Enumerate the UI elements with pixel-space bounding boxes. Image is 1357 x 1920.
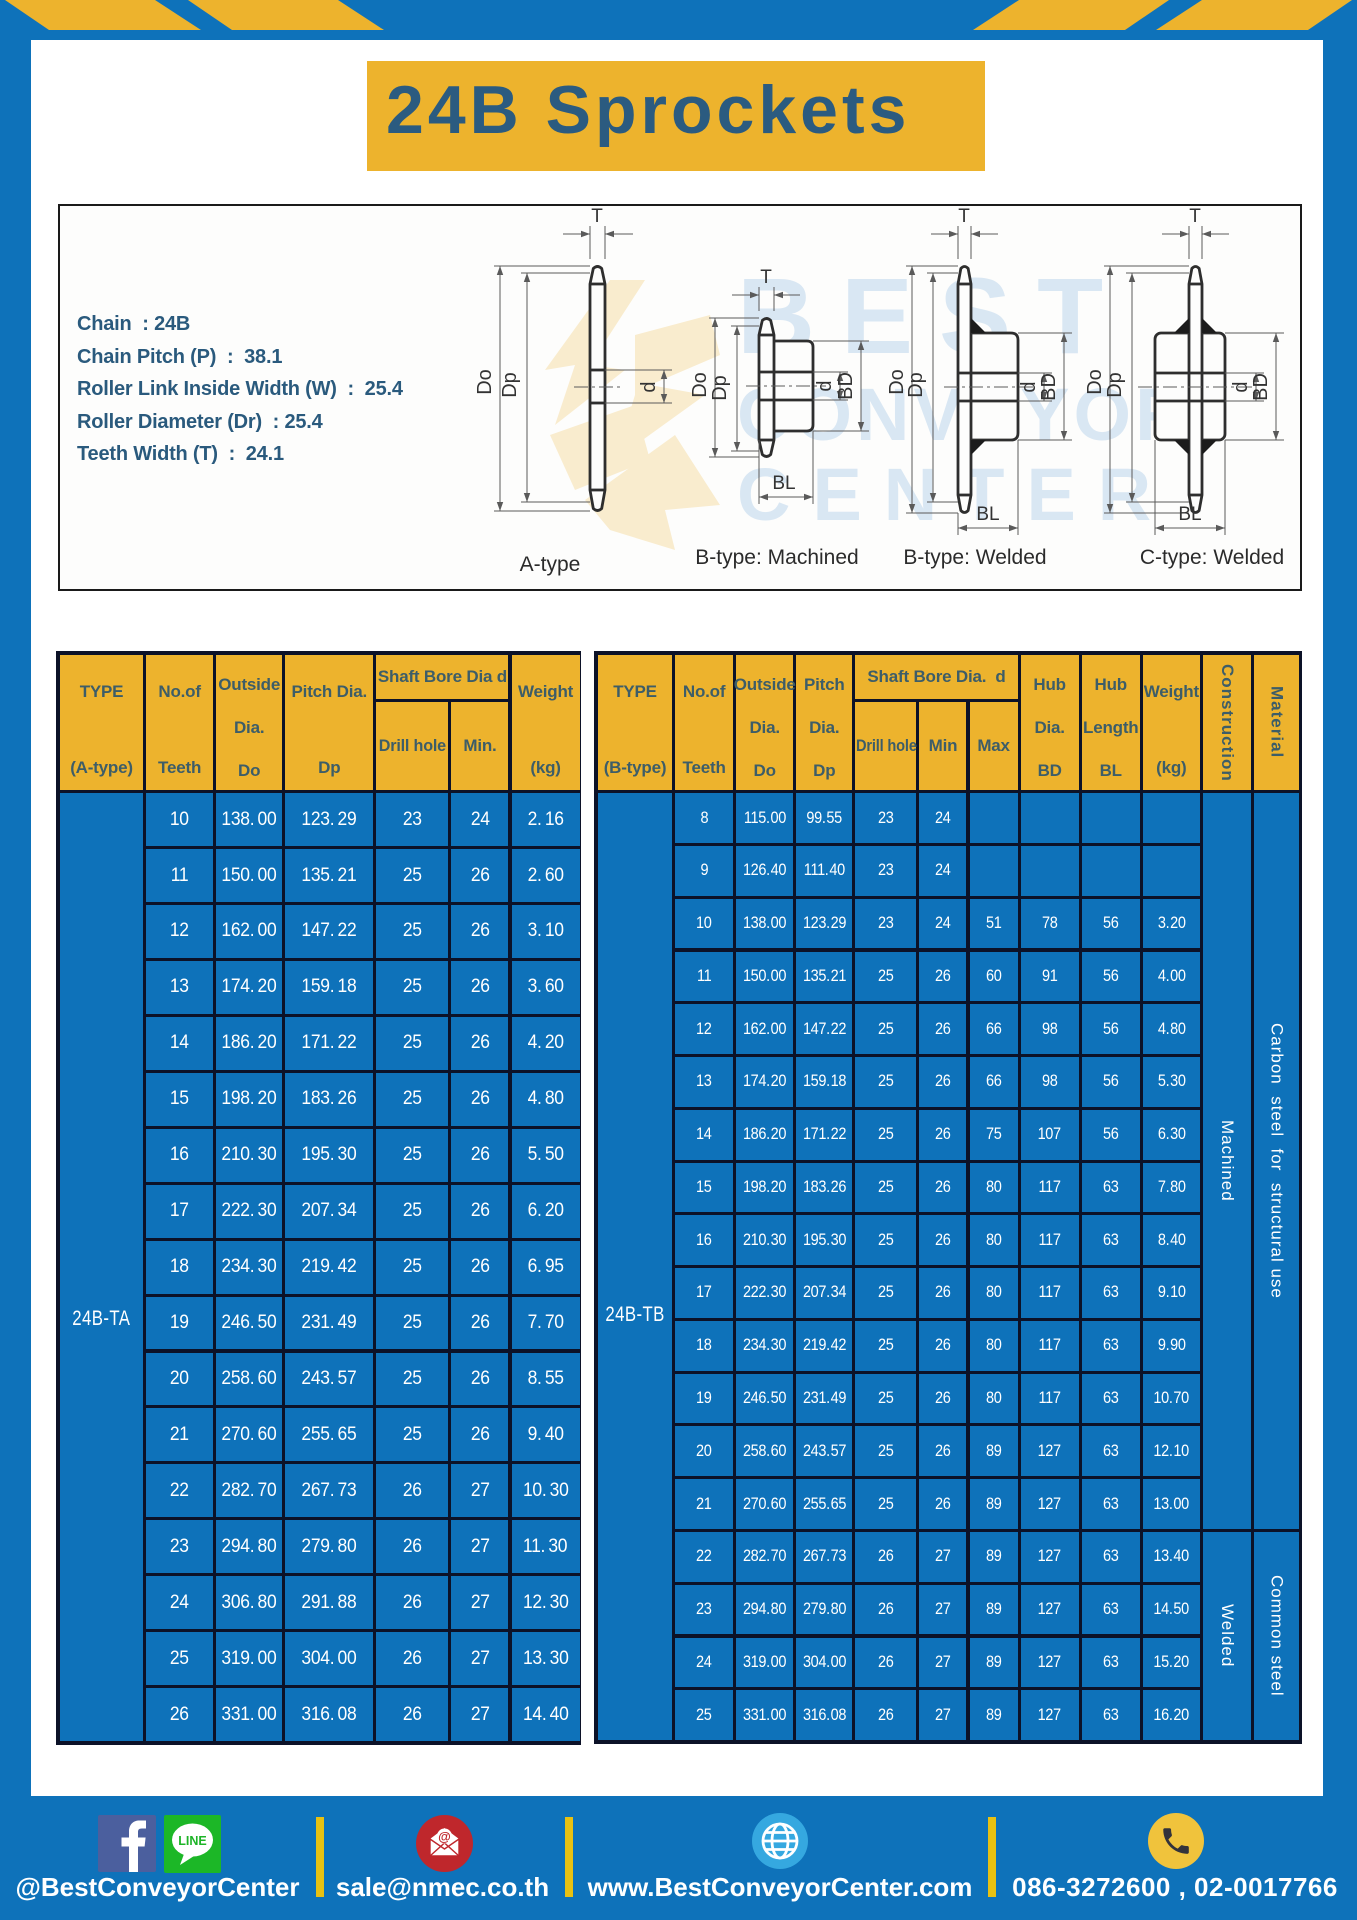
svg-text:Do: Do [474,369,496,395]
svg-text:A-type: A-type [520,553,581,576]
svg-text:BD: BD [835,372,857,400]
svg-text:Dp: Dp [1104,372,1126,398]
svg-text:Dp: Dp [709,375,731,401]
svg-text:BL: BL [976,504,999,525]
svg-text:T: T [591,206,603,227]
svg-text:d: d [814,380,836,391]
svg-text:T: T [958,206,970,227]
svg-text:d: d [638,381,660,392]
svg-text:LINE: LINE [178,1834,206,1848]
svg-text:T: T [760,267,772,288]
svg-text:BL: BL [1178,504,1201,525]
svg-text:d: d [1018,381,1040,392]
svg-text:Dp: Dp [905,372,927,398]
svg-text:Do: Do [689,372,711,398]
svg-text:C-type: Welded: C-type: Welded [1140,546,1284,569]
svg-text:BD: BD [1038,373,1060,401]
svg-text:BL: BL [772,473,795,494]
svg-text:B-type: Machined: B-type: Machined [695,546,858,569]
svg-text:d: d [1230,381,1252,392]
svg-text:B-type: Welded: B-type: Welded [903,546,1046,569]
svg-text:BD: BD [1250,373,1272,401]
svg-text:@: @ [438,1829,451,1844]
svg-text:Dp: Dp [499,372,521,398]
svg-text:T: T [1189,206,1201,227]
svg-text:Do: Do [1084,369,1106,395]
